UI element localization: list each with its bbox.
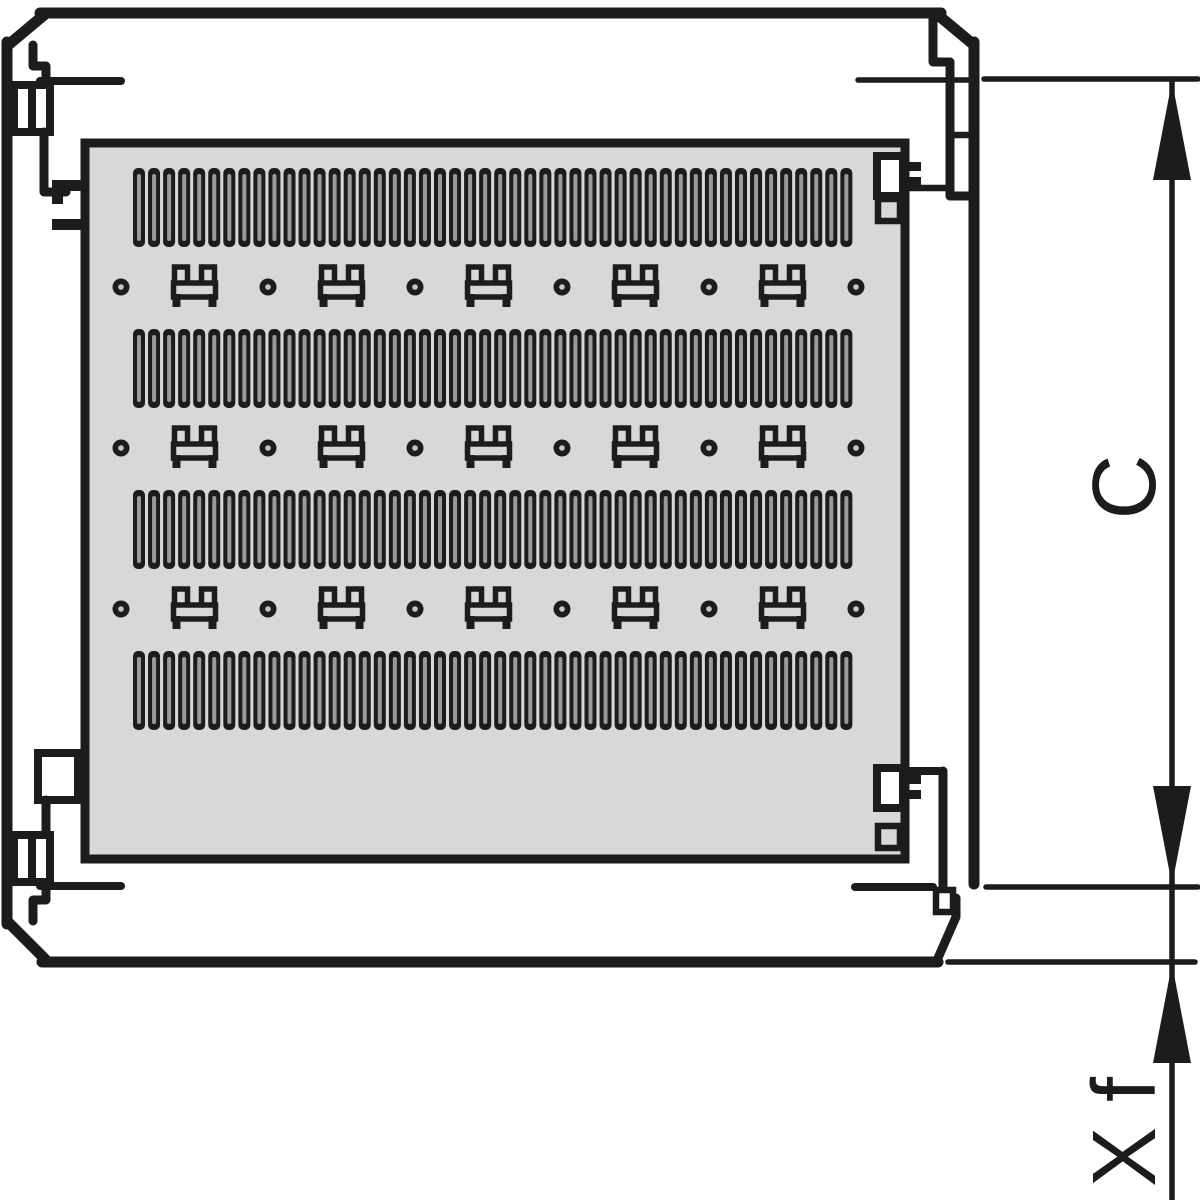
- vent-slot-slit: [573, 174, 577, 241]
- vent-slot-slit: [589, 174, 593, 241]
- vent-slot-slit: [212, 174, 216, 241]
- vent-slot-slit: [543, 335, 547, 402]
- vent-slot-slit: [799, 657, 803, 724]
- latch-step: [33, 45, 46, 80]
- vent-slot-slit: [844, 496, 848, 563]
- vent-slot-slit: [137, 174, 141, 241]
- tie-bracket-foot: [209, 455, 217, 468]
- vent-slot-slit: [829, 496, 833, 563]
- vent-slot-slit: [348, 496, 352, 563]
- vent-slot-slit: [754, 657, 758, 724]
- vent-slot-slit: [303, 335, 307, 402]
- vent-slot-slit: [423, 657, 427, 724]
- vent-slot-slit: [573, 335, 577, 402]
- rivet-hole-center: [559, 445, 565, 451]
- vent-slot-slit: [649, 657, 653, 724]
- tie-bracket-foot: [761, 455, 769, 468]
- vent-slot-slit: [694, 335, 698, 402]
- vent-slot-slit: [197, 174, 201, 241]
- vent-slot-slit: [453, 335, 457, 402]
- vent-slot-slit: [468, 496, 472, 563]
- technical-drawing: C X f: [0, 0, 1200, 1200]
- foot-pocket: [936, 890, 953, 912]
- rivet-hole-center: [706, 284, 712, 290]
- vent-slot-slit: [227, 657, 231, 724]
- vent-slot-slit: [453, 496, 457, 563]
- vent-slot-slit: [378, 496, 382, 563]
- vent-slot-slit: [137, 657, 141, 724]
- vent-slot-slit: [694, 174, 698, 241]
- vent-slot-slit: [378, 335, 382, 402]
- vent-slot-slit: [333, 335, 337, 402]
- vent-slot-slit: [303, 174, 307, 241]
- vent-slot-slit: [408, 496, 412, 563]
- vent-slot-slit: [799, 496, 803, 563]
- vent-slot-slit: [483, 657, 487, 724]
- vent-slot-slit: [182, 657, 186, 724]
- vent-slot-slit: [137, 335, 141, 402]
- vent-slot-slit: [333, 174, 337, 241]
- frame-corner-chamfer-tl: [7, 15, 44, 46]
- vent-slot-slit: [634, 657, 638, 724]
- vent-slot-slit: [664, 657, 668, 724]
- vent-slot-slit: [182, 496, 186, 563]
- vent-slot-slit: [649, 496, 653, 563]
- vent-slot-slit: [619, 657, 623, 724]
- rivet-hole-center: [265, 606, 271, 612]
- vent-slot-slit: [167, 335, 171, 402]
- rivet-hole-center: [853, 606, 859, 612]
- vent-slot-slit: [604, 496, 608, 563]
- vent-slot-slit: [724, 496, 728, 563]
- tie-bracket-foot: [356, 294, 364, 307]
- vent-slot-slit: [829, 174, 833, 241]
- vent-slot-slit: [167, 496, 171, 563]
- tab-notch: [877, 768, 903, 808]
- vent-slot-slit: [558, 174, 562, 241]
- vent-slot-slit: [257, 174, 261, 241]
- tab-prong: [900, 775, 921, 784]
- rivet-hole-center: [118, 606, 124, 612]
- vent-slot-slit: [257, 335, 261, 402]
- vent-slot-slit: [814, 174, 818, 241]
- vent-slot-slit: [453, 174, 457, 241]
- prong-bracket: [38, 753, 78, 800]
- vent-slot-slit: [438, 335, 442, 402]
- vent-slot-slit: [528, 174, 532, 241]
- vent-slot-slit: [242, 496, 246, 563]
- vent-slot-slit: [724, 335, 728, 402]
- vent-slot-slit: [754, 496, 758, 563]
- tab-prong: [900, 177, 921, 186]
- vent-slot-slit: [393, 335, 397, 402]
- vent-slot-slit: [272, 657, 276, 724]
- mounting-plate: [85, 143, 946, 859]
- tie-bracket-foot: [650, 294, 658, 307]
- drawing-canvas: C X f: [0, 0, 1200, 1200]
- vent-slot-slit: [408, 657, 412, 724]
- vent-slot-slit: [604, 335, 608, 402]
- vent-slot-slit: [272, 496, 276, 563]
- vent-slot-slit: [814, 657, 818, 724]
- tie-bracket-foot: [320, 616, 328, 629]
- tab-prong: [900, 162, 921, 171]
- rivet-hole-center: [706, 445, 712, 451]
- vent-slot-slit: [393, 657, 397, 724]
- vent-slot-slit: [318, 174, 322, 241]
- rivet-hole-center: [706, 606, 712, 612]
- arrowhead-up-icon: [1153, 964, 1191, 1063]
- vent-slot-slit: [152, 174, 156, 241]
- vent-slot-slit: [513, 174, 517, 241]
- vent-slot-slit: [589, 335, 593, 402]
- vent-slot-slit: [829, 335, 833, 402]
- vent-slot-slit: [558, 496, 562, 563]
- arrowhead-down-icon: [1153, 786, 1191, 885]
- vent-slot-slit: [408, 174, 412, 241]
- vent-slot-slit: [634, 174, 638, 241]
- vent-slot-slit: [152, 657, 156, 724]
- vent-slot-slit: [483, 496, 487, 563]
- vent-slot-slit: [152, 496, 156, 563]
- vent-slot-slit: [257, 657, 261, 724]
- vent-slot-slit: [619, 174, 623, 241]
- vent-slot-slit: [197, 335, 201, 402]
- vent-slot-slit: [167, 657, 171, 724]
- vent-slot-slit: [543, 174, 547, 241]
- vent-slot-slit: [694, 496, 698, 563]
- rivet-hole-center: [412, 445, 418, 451]
- vent-slot-slit: [724, 657, 728, 724]
- vent-slot-slit: [619, 335, 623, 402]
- tie-bracket-foot: [614, 294, 622, 307]
- vent-slot-slit: [513, 496, 517, 563]
- tie-bracket-foot: [761, 294, 769, 307]
- latch-step: [33, 888, 46, 921]
- vent-slot-slit: [528, 496, 532, 563]
- vent-slot-slit: [303, 657, 307, 724]
- tie-bracket-foot: [797, 616, 805, 629]
- vent-slot-slit: [528, 657, 532, 724]
- vent-slot-slit: [709, 657, 713, 724]
- vent-slot-slit: [483, 174, 487, 241]
- vent-slot-slit: [829, 657, 833, 724]
- vent-slot-slit: [799, 174, 803, 241]
- vent-slot-slit: [769, 335, 773, 402]
- tie-bracket-foot: [650, 616, 658, 629]
- vent-slot-slit: [679, 496, 683, 563]
- rivet-hole-center: [265, 284, 271, 290]
- tab-notch: [877, 156, 903, 196]
- vent-slot-slit: [709, 496, 713, 563]
- vent-slot-slit: [769, 496, 773, 563]
- vent-slot-slit: [363, 335, 367, 402]
- vent-slot-slit: [227, 174, 231, 241]
- vent-slot-slit: [378, 657, 382, 724]
- vent-slot-slit: [257, 496, 261, 563]
- vent-slot-slit: [649, 174, 653, 241]
- vent-slot-slit: [784, 657, 788, 724]
- vent-slot-slit: [754, 335, 758, 402]
- vent-slot-slit: [769, 174, 773, 241]
- vent-slot-slit: [739, 496, 743, 563]
- rivet-hole-center: [412, 606, 418, 612]
- vent-slot-slit: [182, 335, 186, 402]
- tie-bracket-foot: [320, 455, 328, 468]
- vent-slot-slit: [212, 335, 216, 402]
- vent-slot-slit: [182, 174, 186, 241]
- vent-slot-slit: [453, 657, 457, 724]
- vent-slot-slit: [513, 657, 517, 724]
- tie-bracket-foot: [173, 616, 181, 629]
- rivet-hole-center: [559, 284, 565, 290]
- tie-bracket-foot: [614, 455, 622, 468]
- vent-slot-slit: [212, 657, 216, 724]
- vent-slot-slit: [634, 496, 638, 563]
- tie-bracket-foot: [761, 616, 769, 629]
- tie-bracket-foot: [467, 294, 475, 307]
- vent-slot-slit: [679, 335, 683, 402]
- dimension-annotations: C X f: [948, 79, 1198, 1200]
- vent-slot-slit: [498, 496, 502, 563]
- vent-slot-slit: [438, 657, 442, 724]
- vent-slot-slit: [844, 335, 848, 402]
- vent-slot-slit: [709, 174, 713, 241]
- vent-slot-slit: [558, 335, 562, 402]
- tie-bracket-foot: [797, 294, 805, 307]
- vent-slot-slit: [814, 496, 818, 563]
- vent-slot-slit: [724, 174, 728, 241]
- vent-slot-slit: [739, 174, 743, 241]
- vent-slot-slit: [573, 657, 577, 724]
- vent-slot-slit: [348, 174, 352, 241]
- arrowhead-up-icon: [1153, 81, 1191, 180]
- vent-slot-slit: [242, 174, 246, 241]
- vent-slot-slit: [197, 496, 201, 563]
- vent-slot-slit: [288, 174, 292, 241]
- tie-bracket-foot: [467, 616, 475, 629]
- vent-slot-slit: [167, 174, 171, 241]
- rivet-hole-center: [853, 284, 859, 290]
- vent-slot-slit: [558, 657, 562, 724]
- rivet-hole-center: [118, 445, 124, 451]
- tie-bracket-foot: [173, 455, 181, 468]
- vent-slot-slit: [664, 174, 668, 241]
- vent-slot-slit: [619, 496, 623, 563]
- rivet-hole-center: [265, 445, 271, 451]
- tab-prong: [900, 790, 921, 799]
- tie-bracket-foot: [503, 616, 511, 629]
- tie-bracket-foot: [320, 294, 328, 307]
- vent-slot-slit: [408, 335, 412, 402]
- vent-slot-slit: [212, 496, 216, 563]
- vent-slot-slit: [694, 657, 698, 724]
- vent-slot-slit: [799, 335, 803, 402]
- plate-prong-stub: [52, 180, 63, 204]
- vent-slot-slit: [573, 496, 577, 563]
- vent-slot-slit: [288, 496, 292, 563]
- vent-slot-slit: [528, 335, 532, 402]
- vent-slot-slit: [438, 496, 442, 563]
- vent-slot-slit: [348, 335, 352, 402]
- tab-square-hole: [878, 826, 900, 848]
- vent-slot-slit: [318, 335, 322, 402]
- vent-slot-slit: [333, 496, 337, 563]
- rivet-hole-center: [118, 284, 124, 290]
- vent-slot-slit: [197, 657, 201, 724]
- tab-square-hole: [878, 199, 900, 221]
- vent-slot-slit: [363, 174, 367, 241]
- vent-slot-slit: [348, 657, 352, 724]
- vent-slot-slit: [589, 496, 593, 563]
- tie-bracket-foot: [503, 294, 511, 307]
- vent-slot-slit: [227, 335, 231, 402]
- vent-slot-slit: [498, 335, 502, 402]
- vent-slot-slit: [649, 335, 653, 402]
- vent-slot-slit: [272, 174, 276, 241]
- vent-slot-slit: [543, 657, 547, 724]
- vent-slot-slit: [739, 657, 743, 724]
- vent-slot-slit: [423, 496, 427, 563]
- tie-bracket-foot: [209, 294, 217, 307]
- vent-slot-slit: [543, 496, 547, 563]
- vent-slot-slit: [483, 335, 487, 402]
- tie-bracket-foot: [797, 455, 805, 468]
- vent-slot-slit: [288, 657, 292, 724]
- vent-slot-slit: [333, 657, 337, 724]
- vent-slot-slit: [318, 657, 322, 724]
- vent-slot-slit: [739, 335, 743, 402]
- vent-slot-slit: [679, 657, 683, 724]
- vent-slot-slit: [498, 174, 502, 241]
- vent-slot-slit: [378, 174, 382, 241]
- rivet-hole-center: [559, 606, 565, 612]
- vent-slot-slit: [604, 657, 608, 724]
- dim-label-c: C: [1075, 455, 1175, 520]
- vent-slot-slit: [468, 335, 472, 402]
- vent-slot-slit: [288, 335, 292, 402]
- vent-slot-slit: [844, 174, 848, 241]
- vent-slot-slit: [423, 174, 427, 241]
- vent-slot-slit: [784, 335, 788, 402]
- vent-slot-slit: [814, 335, 818, 402]
- vent-slot-slit: [498, 657, 502, 724]
- dim-label-xf: X f: [1075, 1076, 1175, 1187]
- vent-slot-slit: [393, 496, 397, 563]
- vent-slot-slit: [754, 174, 758, 241]
- tie-bracket-foot: [467, 455, 475, 468]
- vent-slot-slit: [589, 657, 593, 724]
- tie-bracket-foot: [614, 616, 622, 629]
- tie-bracket-foot: [209, 616, 217, 629]
- vent-slot-slit: [844, 657, 848, 724]
- vent-slot-slit: [604, 174, 608, 241]
- vent-slot-slit: [634, 335, 638, 402]
- vent-slot-slit: [272, 335, 276, 402]
- vent-slot-slit: [423, 335, 427, 402]
- plate-prong: [52, 219, 82, 230]
- tie-bracket-foot: [650, 455, 658, 468]
- vent-slot-slit: [303, 496, 307, 563]
- vent-slot-slit: [784, 174, 788, 241]
- vent-slot-slit: [468, 657, 472, 724]
- vent-slot-slit: [137, 496, 141, 563]
- vent-slot-slit: [709, 335, 713, 402]
- frame-corner-chamfer-tr: [938, 15, 974, 45]
- frame-corner-chamfer-bl: [7, 921, 45, 959]
- rivet-hole-center: [853, 445, 859, 451]
- vent-slot-slit: [242, 335, 246, 402]
- vent-slot-slit: [468, 174, 472, 241]
- tie-bracket-foot: [356, 616, 364, 629]
- tie-bracket-foot: [503, 455, 511, 468]
- vent-slot-slit: [393, 174, 397, 241]
- vent-slot-slit: [363, 496, 367, 563]
- vent-slot-slit: [679, 174, 683, 241]
- tie-bracket-foot: [356, 455, 364, 468]
- vent-slot-slit: [318, 496, 322, 563]
- rivet-hole-center: [412, 284, 418, 290]
- vent-slot-slit: [769, 657, 773, 724]
- vent-slot-slit: [784, 496, 788, 563]
- vent-slot-slit: [227, 496, 231, 563]
- vent-slot-slit: [664, 335, 668, 402]
- vent-slot-slit: [242, 657, 246, 724]
- vent-slot-slit: [438, 174, 442, 241]
- vent-slot-slit: [513, 335, 517, 402]
- vent-slot-slit: [363, 657, 367, 724]
- vent-slot-slit: [152, 335, 156, 402]
- vent-slot-slit: [664, 496, 668, 563]
- tie-bracket-foot: [173, 294, 181, 307]
